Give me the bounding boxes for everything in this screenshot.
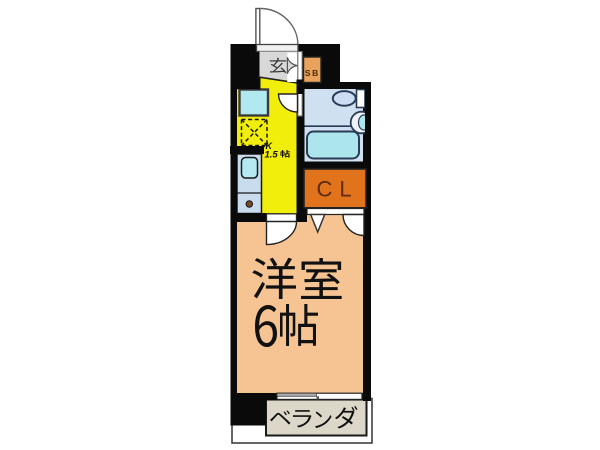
svg-text:CL: CL	[317, 177, 359, 202]
svg-text:SB: SB	[305, 68, 320, 78]
svg-text:1.5: 1.5	[265, 149, 279, 160]
